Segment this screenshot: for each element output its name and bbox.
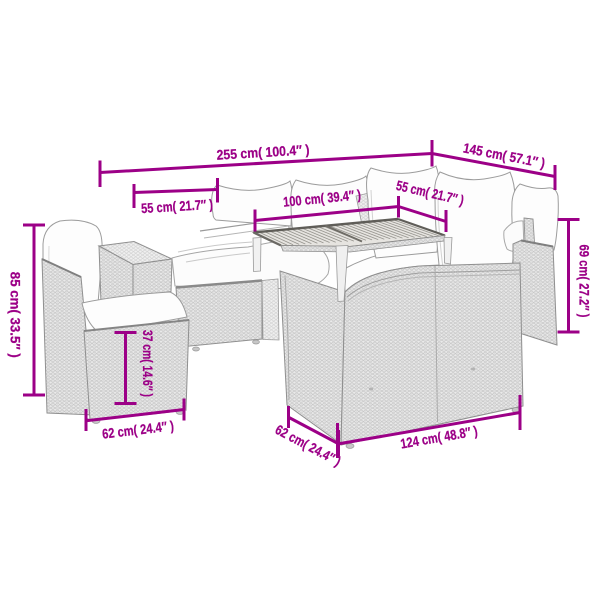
svg-text:37 cm( 14.6″ ): 37 cm( 14.6″ ) (140, 330, 155, 397)
svg-text:85 cm( 33.5″ ): 85 cm( 33.5″ ) (8, 272, 23, 358)
svg-text:69 cm( 27.2″ ): 69 cm( 27.2″ ) (577, 245, 592, 318)
